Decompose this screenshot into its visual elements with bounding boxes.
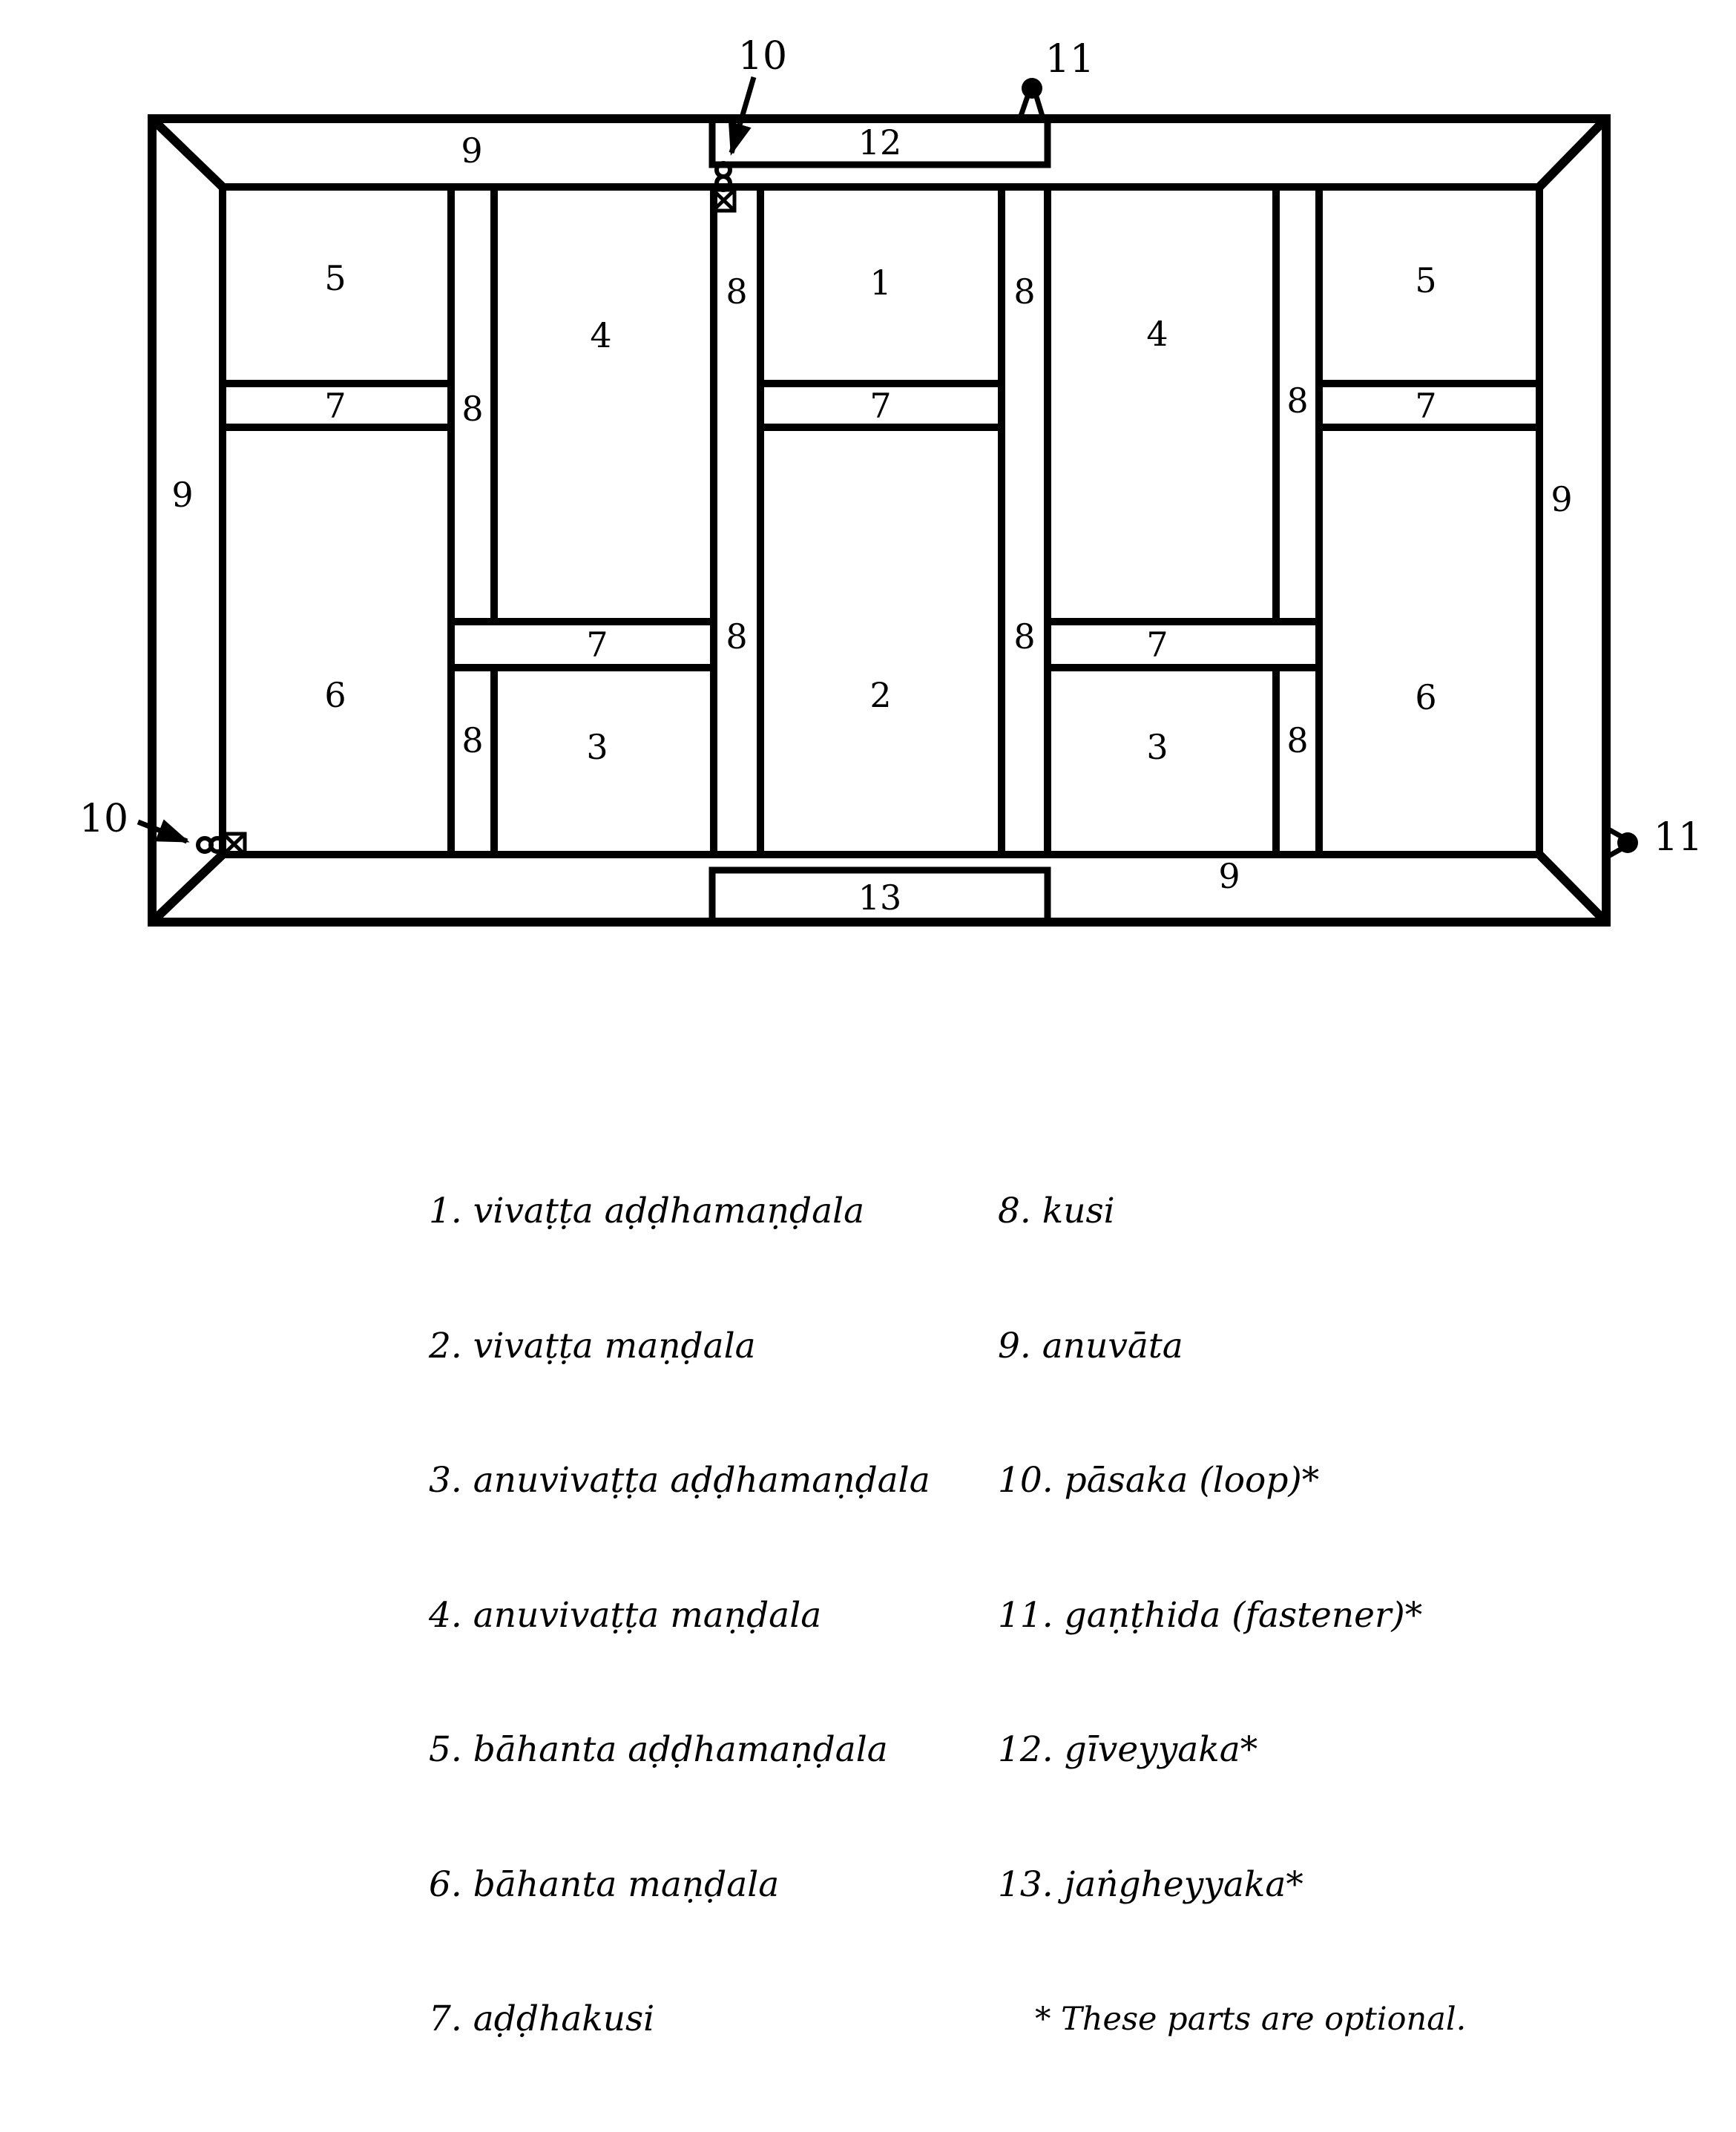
kusi-8-c-lower-label: 8	[1013, 616, 1035, 657]
legend-item-6: 6. bāhanta maṇḍala	[429, 1863, 930, 1908]
legend-item-1: 1. vivaṭṭa aḍḍhamaṇḍala	[429, 1189, 930, 1234]
kusi-8-b-lower-label: 8	[726, 616, 747, 657]
kusi-8-a-upper-label: 8	[461, 389, 483, 429]
ganthida-fastener-top	[1022, 78, 1042, 99]
legend-item-13: 13. jaṅgheyyaka*	[998, 1863, 1466, 1908]
panel-1-label: 1	[869, 263, 891, 303]
panel-5-left-label: 5	[324, 258, 346, 298]
callout-10-bottom: 10	[79, 797, 128, 841]
giveyyaka-tab-label: 12	[858, 122, 902, 162]
kusi-8-d-upper-label: 8	[1286, 381, 1308, 421]
anuvata-9-bottom-label: 9	[1218, 856, 1240, 896]
callout-11-bottom: 11	[1654, 815, 1703, 860]
robe-diagram-svg: 121357688473881728847388576999910111011	[0, 0, 1736, 994]
kusi-8-b-upper-label: 8	[726, 272, 747, 312]
addhakusi-7-col4-label: 7	[1146, 625, 1168, 665]
panel-4-left-label: 4	[590, 315, 611, 355]
legend-item-8: 8. kusi	[998, 1189, 1466, 1234]
panel-4-right-label: 4	[1146, 314, 1168, 354]
legend-item-11: 11. gaṇṭhida (fastener)*	[998, 1593, 1466, 1639]
corner-miter-seam	[1539, 123, 1602, 187]
kusi-8-c-upper-label: 8	[1013, 272, 1035, 312]
panel-6-left-label: 6	[324, 675, 346, 715]
kusi-8-d-lower-label: 8	[1286, 720, 1308, 760]
panel-3-left-label: 3	[586, 727, 608, 767]
legend-item-7: 7. aḍḍhakusi	[429, 1997, 930, 2042]
legend-item-9: 9. anuvāta	[998, 1324, 1466, 1369]
legend-right-column: 8. kusi 9. anuvāta 10. pāsaka (loop)* 11…	[998, 1099, 1466, 2132]
legend-item-10: 10. pāsaka (loop)*	[998, 1458, 1466, 1504]
page: { "colors": { "ink": "#000000", "backgro…	[0, 0, 1736, 1780]
legend-item-3: 3. anuvivaṭṭa aḍḍhamaṇḍala	[429, 1458, 930, 1504]
legend-footnote: * These parts are optional.	[998, 1997, 1466, 2042]
legend-item-5: 5. bāhanta aḍḍhamaṇḍala	[429, 1728, 930, 1773]
panel-2-label: 2	[869, 675, 891, 715]
addhakusi-7-col2-label: 7	[586, 625, 608, 665]
legend-left-column: 1. vivaṭṭa aḍḍhamaṇḍala 2. vivaṭṭa maṇḍa…	[429, 1099, 930, 2132]
kusi-8-a-lower-label: 8	[461, 720, 483, 760]
arrow-to-bottom-loop	[138, 822, 187, 841]
legend-item-12: 12. gīveyyaka*	[998, 1728, 1466, 1773]
panel-3-right-label: 3	[1146, 727, 1168, 767]
legend-item-4: 4. anuvivaṭṭa maṇḍala	[429, 1593, 930, 1639]
anuvata-9-left-label: 9	[171, 475, 193, 515]
addhakusi-7-col3-label: 7	[869, 386, 891, 426]
corner-miter-seam	[157, 855, 223, 918]
callout-10-top: 10	[738, 34, 787, 79]
addhakusi-7-col1-label: 7	[324, 386, 346, 426]
legend-item-2: 2. vivaṭṭa maṇḍala	[429, 1324, 930, 1369]
ganthida-fastener-bottom	[1617, 832, 1638, 853]
addhakusi-7-col5-label: 7	[1415, 386, 1436, 426]
anuvata-9-right-label: 9	[1551, 479, 1572, 519]
panel-5-right-label: 5	[1415, 260, 1436, 300]
anuvata-9-top-label: 9	[461, 131, 482, 171]
callout-11-top: 11	[1045, 37, 1094, 82]
panel-6-right-label: 6	[1415, 677, 1436, 717]
anuvata-outer-frame	[152, 119, 1606, 922]
corner-miter-seam	[157, 123, 223, 187]
robe-diagram: 121357688473881728847388576999910111011	[0, 0, 1736, 994]
corner-miter-seam	[1539, 855, 1602, 918]
jangheyyaka-tab-label: 13	[858, 878, 902, 918]
